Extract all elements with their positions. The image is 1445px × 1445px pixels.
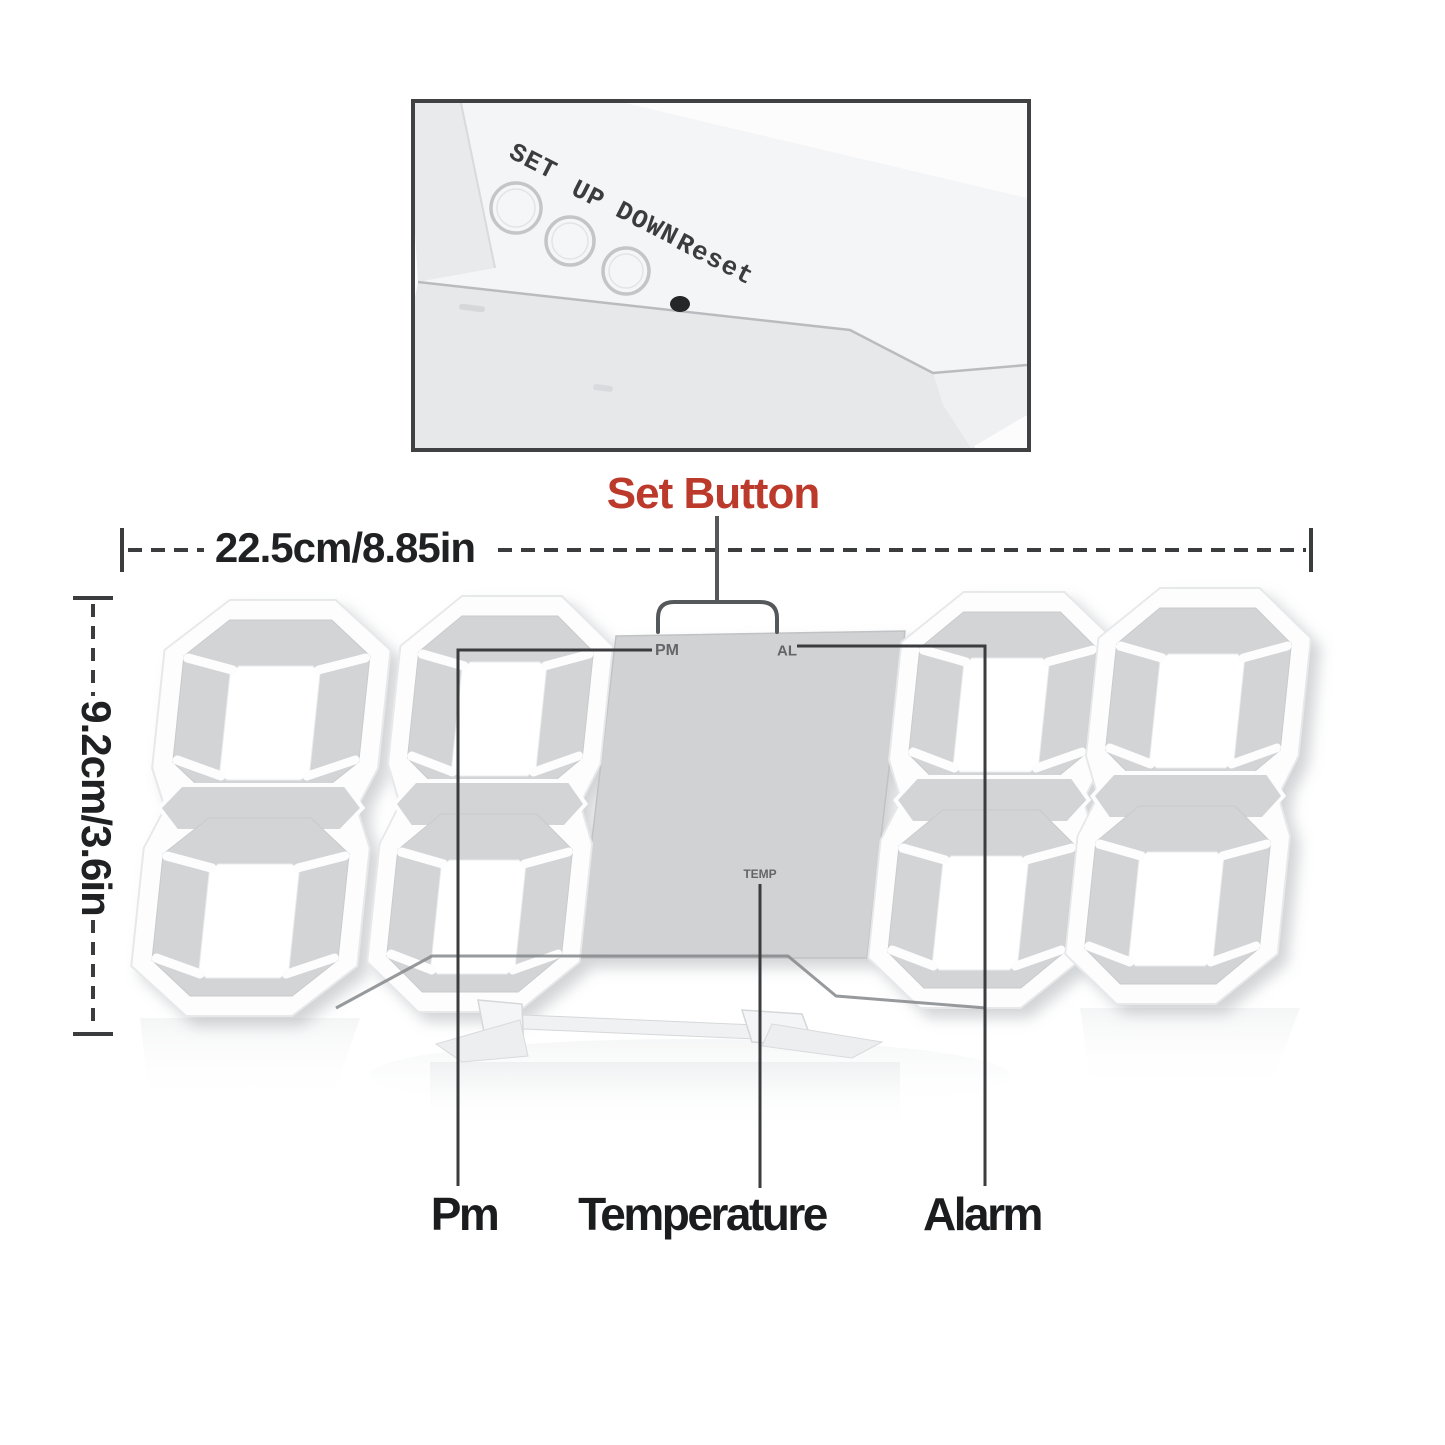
led-clock — [126, 588, 1316, 1016]
alarm-callout-label: Alarm — [923, 1191, 1041, 1237]
set-button-label: Set Button — [607, 472, 819, 516]
product-diagram: SET UP DOWN Reset — [0, 0, 1445, 1445]
clock-digit-1 — [126, 600, 396, 1016]
center-panel — [578, 631, 905, 958]
alarm-display-marking: AL — [777, 644, 797, 659]
clock-digit-2 — [362, 596, 618, 1012]
pm-callout-label: Pm — [431, 1191, 498, 1237]
width-dimension-label: 22.5cm/8.85in — [215, 527, 475, 569]
pm-display-marking: PM — [655, 643, 679, 659]
height-dimension-label: 9.2cm/3.6in — [75, 700, 117, 915]
set-button-pointer — [658, 516, 777, 632]
temperature-display-marking: TEMP — [743, 868, 776, 880]
temperature-callout-label: Temperature — [578, 1191, 826, 1237]
clock-digit-4 — [1060, 588, 1316, 1004]
